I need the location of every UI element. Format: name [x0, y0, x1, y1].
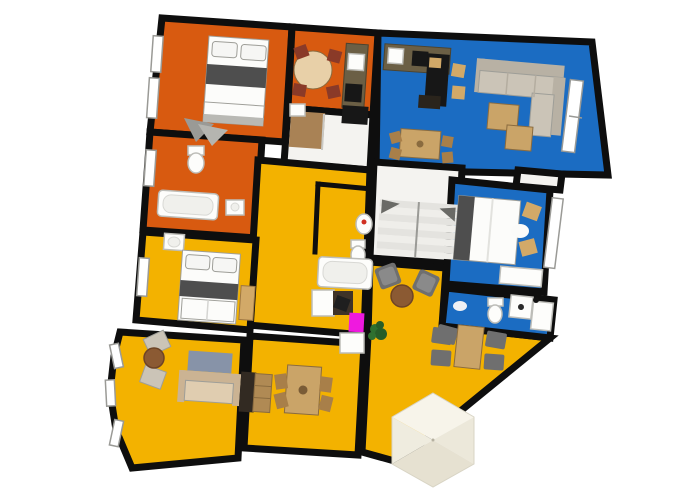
chair: [319, 376, 333, 393]
dresser: [499, 266, 542, 287]
window: [147, 78, 160, 119]
bookshelf: [253, 373, 273, 412]
bed-blanket-band: [206, 64, 267, 88]
bed-pillow: [240, 44, 266, 61]
bay-window: [105, 380, 115, 406]
window: [151, 36, 163, 73]
floorplan-canvas: [0, 0, 700, 500]
bathtub: [317, 257, 372, 290]
magenta-cabinet: [348, 313, 364, 333]
sink: [356, 214, 372, 234]
rug: [187, 350, 232, 373]
white-cabinet: [340, 333, 364, 353]
kitchen-cabinet-black: [341, 105, 368, 125]
sink: [163, 233, 184, 250]
bed-pillow: [212, 41, 238, 58]
stove: [412, 51, 429, 67]
desk-item: [429, 57, 442, 68]
window: [144, 150, 156, 187]
double-bed: [453, 196, 520, 265]
window: [137, 258, 150, 297]
rug: [511, 224, 529, 238]
dining-table: [454, 325, 484, 369]
chair-gray: [485, 330, 507, 349]
floorplan-render: [0, 0, 700, 500]
sink: [226, 200, 244, 215]
rug: [453, 301, 467, 311]
coffee-table: [505, 125, 533, 151]
sofa: [177, 370, 241, 406]
faucet: [533, 297, 539, 303]
double-bed: [203, 36, 269, 126]
chair: [441, 135, 454, 148]
washer: [509, 295, 533, 319]
chair: [442, 151, 454, 163]
chair: [274, 373, 288, 390]
desk-chair: [451, 63, 466, 78]
bathtub: [157, 190, 219, 220]
chair-gray: [483, 353, 504, 370]
toilet: [488, 298, 503, 323]
interior-wall: [315, 184, 318, 252]
bathroom-cabinet: [531, 301, 554, 331]
kitchen-sink: [348, 53, 365, 70]
wardrobe: [239, 286, 255, 321]
balcony-notch: [516, 170, 562, 190]
toilet: [188, 146, 204, 173]
chair: [292, 83, 307, 97]
stove: [344, 83, 362, 102]
stairs: [376, 199, 458, 259]
chair-gray: [430, 349, 451, 366]
desk-chair: [451, 85, 465, 99]
desk-white: [312, 290, 334, 316]
closet-fixture: [290, 104, 305, 116]
pyramid-apex: [432, 439, 435, 442]
kitchen-sink: [388, 48, 404, 64]
round-table: [144, 348, 164, 368]
round-table: [391, 285, 413, 307]
chair-gray: [431, 327, 453, 346]
double-bed: [178, 250, 241, 324]
desk-return: [418, 95, 441, 110]
